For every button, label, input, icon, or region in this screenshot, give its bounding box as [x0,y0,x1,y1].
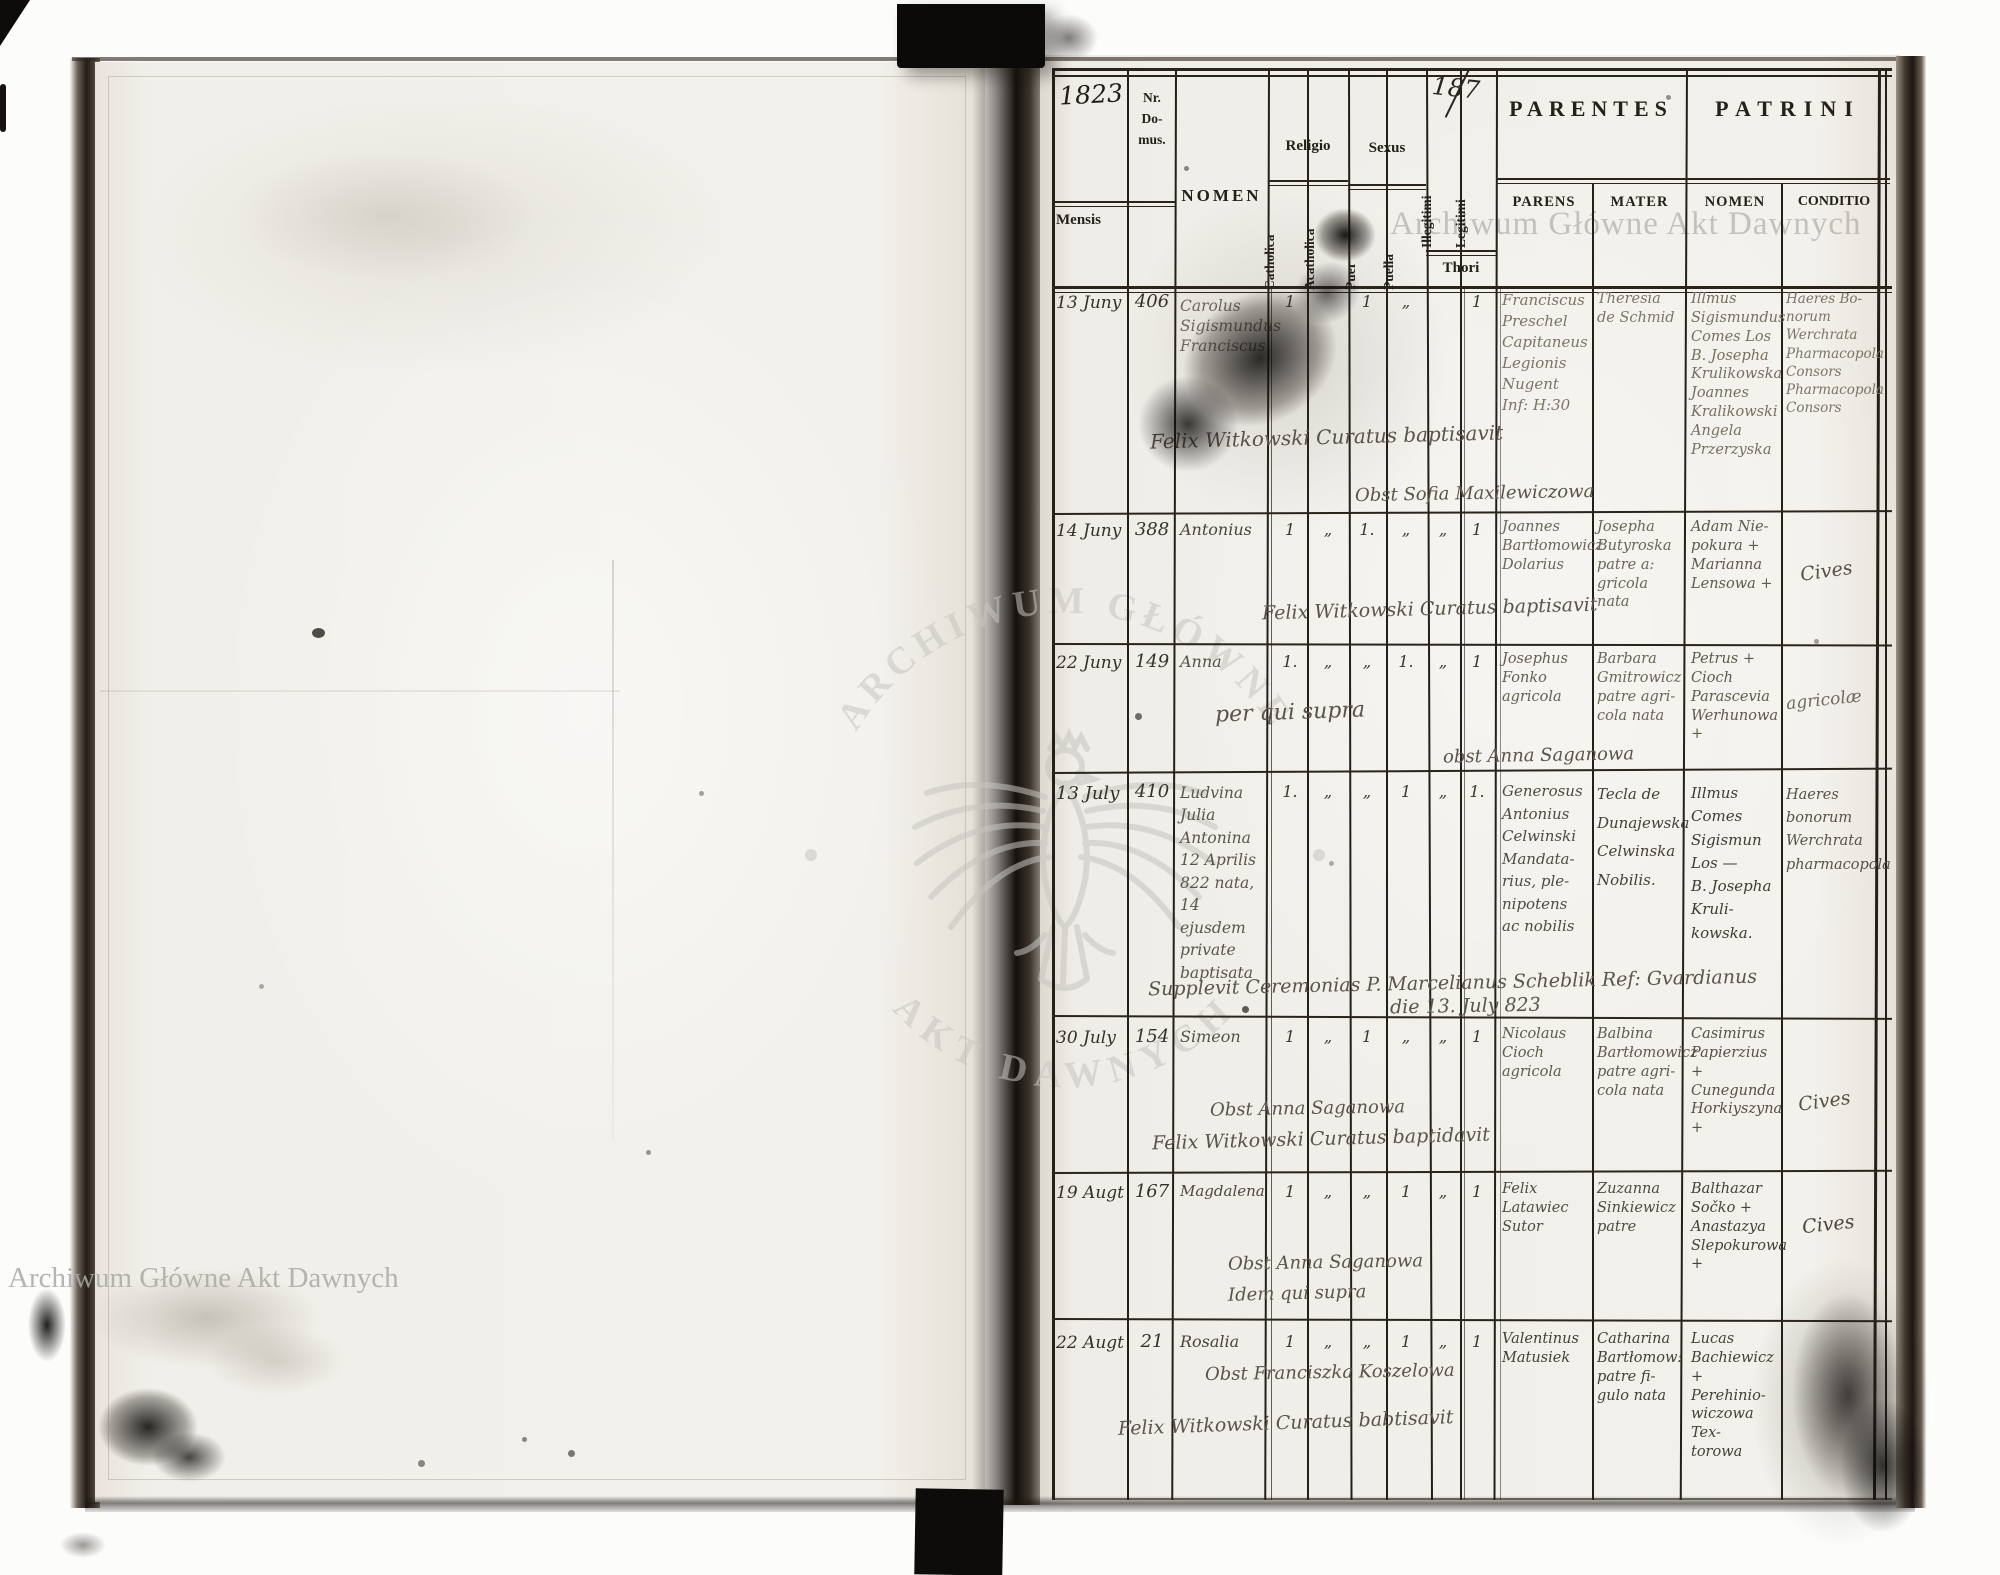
tally-puella: 1 [1388,1182,1424,1201]
tally-acatholica: „ [1310,1332,1346,1351]
cell-nomen: Anna [1180,652,1266,673]
rule-line [1496,178,1686,180]
column-header-patrini: PATRINI [1686,96,1890,122]
column-header-illegitimi: Illegitimi [1419,196,1435,249]
column-header-catholica: Catholica [1262,235,1278,291]
cell-nr-domus: 167 [1130,1180,1174,1203]
tally-puella: 1 [1388,782,1424,801]
cell-patrini-nomen: Illmus Sigismundus Comes Los B. Josepha … [1691,290,1779,460]
rule-line [1127,68,1129,1500]
cell-nr-domus: 149 [1130,650,1174,673]
cell-mater: Josepha Butyroska patre a: gricola nata [1597,518,1684,612]
marginal-note-midwife: Obst Franciszka Koszelowa [1205,1360,1455,1385]
cell-conditio: Cives [1797,1079,1899,1117]
tally-acatholica: „ [1310,652,1346,671]
cell-mensis: 13 Juny [1056,292,1126,314]
year-annotation: 1823 [1057,78,1124,110]
cell-nomen: Antonius [1180,520,1266,541]
book-spine-bottom [914,1488,1003,1575]
register-table: 1823 Nr. Do- mus. Mensis NOMEN Religio S… [1052,68,1892,1505]
cell-conditio: Haeres bonorum Werchrata pharmacopola [1786,784,1886,877]
rule-line [1686,178,1890,180]
tally-legitimi: 1 [1460,1332,1494,1351]
rule-line [1052,206,1175,207]
tally-illegitimi: „ [1428,1182,1458,1201]
tally-legitimi: 1 [1460,520,1494,539]
stain [60,1532,106,1558]
cell-nomen: Carolus Sigismundus Franciscus [1180,296,1266,356]
rule-line [1268,180,1348,182]
tally-illegitimi: „ [1428,652,1458,671]
cell-mensis: 13 July [1056,782,1126,805]
page-frame-line [108,76,966,1480]
column-header-parentes: PARENTES [1496,96,1686,122]
tally-puella: „ [1388,292,1424,311]
cell-mater: Barbara Gmitrowicz patre agri- cola nata [1597,650,1684,725]
cell-nomen: Rosalia [1180,1332,1266,1353]
cell-mensis: 14 Juny [1056,520,1126,542]
ink-blot [1138,376,1238,472]
rule-line [1052,201,1175,203]
tally-catholica: 1. [1274,782,1306,801]
marginal-note: Idem qui supra [1228,1281,1367,1306]
cell-mater: Zuzanna Sinkiewicz patre [1597,1180,1684,1237]
tally-catholica: 1 [1274,1027,1306,1046]
rule-line [1494,68,1498,1500]
cell-mensis: 19 Augt [1056,1182,1126,1204]
cell-patrini-nomen: Balthazar Sočko + Anastazya Slepokurowa … [1691,1180,1779,1274]
page-number-annotation: 187 [1431,71,1494,106]
cell-mensis: 22 Juny [1056,652,1126,674]
cell-conditio: Cives [1801,1205,1903,1240]
tally-catholica: 1 [1274,292,1306,311]
cell-mensis: 30 July [1056,1027,1126,1049]
column-header-puella: Puella [1381,254,1397,290]
rule-line [1592,183,1594,1500]
cell-nr-domus: 21 [1130,1330,1174,1353]
cell-patrini-nomen: Petrus + Cioch Parascevia Werhunowa + [1691,650,1779,744]
cell-mensis: 22 Augt [1056,1332,1126,1354]
scan-corner-artifact [0,0,30,46]
tally-illegitimi: „ [1428,520,1458,539]
tally-acatholica: „ [1310,520,1346,539]
tally-catholica: 1. [1274,652,1306,671]
tally-acatholica: „ [1310,782,1346,801]
cell-mater: Tecla de Dunajewska Celwinska Nobilis. [1597,780,1684,894]
rule-line [1348,184,1426,186]
tally-catholica: 1 [1274,1332,1306,1351]
rule-line [1052,643,1892,646]
column-header-patrini-nomen: NOMEN [1689,194,1781,211]
cell-patrini-nomen: Adam Nie- pokura + Marianna Lensowa + [1691,518,1779,593]
tally-puer: „ [1350,782,1384,801]
marginal-note-date: die 13. July 823 [1390,994,1541,1019]
book-right-cover-edge [1896,56,1926,1508]
cell-patrini-nomen: Illmus Comes Sigismun Los — B. Josepha K… [1691,782,1779,945]
column-header-nomen: NOMEN [1175,186,1268,206]
column-header-nr-domus: Nr. Do- mus. [1129,88,1175,151]
marginal-note-midwife: Obst Sofia Maxilewiczowa [1355,481,1595,506]
cell-nr-domus: 406 [1130,290,1174,313]
tally-illegitimi: „ [1428,1027,1458,1046]
tally-legitimi: 1 [1460,652,1494,671]
cell-nr-domus: 154 [1130,1025,1174,1048]
ink-blot [1314,208,1376,262]
rule-line [1052,510,1892,515]
marginal-note-baptizer: Felix Witkowski Curatus babtisavit [1118,1406,1454,1440]
rule-line [1052,768,1892,774]
marginal-note-baptizer: Felix Witkowski Curatus baptisavit [1262,594,1598,625]
tally-puella: „ [1388,1027,1424,1046]
cell-mater: Theresia de Schmid [1597,290,1684,328]
column-header-legitimi: Legitimi [1453,199,1469,248]
rule-line [1052,68,1892,71]
ink-blot [28,1288,66,1362]
marginal-note-midwife: obst Anna Saganowa [1443,743,1634,767]
tally-puer: „ [1350,1182,1384,1201]
rule-line [1496,183,1686,184]
column-header-sexus: Sexus [1348,140,1426,157]
tally-illegitimi: „ [1428,1332,1458,1351]
tally-puella: 1. [1388,652,1424,671]
cell-conditio: Haeres Bo- norum Werchrata Pharmacopola … [1786,290,1886,418]
rule-line [1426,255,1496,256]
cell-nomen: Simeon [1180,1027,1266,1048]
cell-mater: Balbina Bartłomowicz patre agri- cola na… [1597,1025,1684,1100]
marginal-note-baptizer: Felix Witkowski Curatus baptidavit [1152,1124,1490,1155]
page-crease [100,690,620,692]
scan-edge-artifact [0,84,6,132]
tally-acatholica: „ [1310,1027,1346,1046]
tally-legitimi: 1 [1460,1027,1494,1046]
page-crease [612,560,614,1140]
cell-parens: Josephus Fonko agricola [1502,650,1590,707]
cell-parens: Joannes Bartłomowicz Dolarius [1502,518,1590,575]
tally-puella: 1 [1388,1332,1424,1351]
cell-nomen: Ludvina Julia Antonina 12 Aprilis 822 na… [1180,782,1266,984]
marginal-note-midwife: Obst Anna Saganowa [1210,1096,1405,1120]
rule-line [1268,185,1348,186]
ink-smudge-halo [1122,188,1452,528]
tally-puer: 1. [1350,520,1384,539]
column-header-parens: PARENS [1498,194,1590,211]
marginal-note: per qui supra [1215,697,1366,727]
marginal-note-baptizer: Felix Witkowski Curatus baptisavit [1150,420,1504,453]
cell-nr-domus: 388 [1130,518,1174,541]
column-header-religio: Religio [1268,138,1348,155]
marginal-note-midwife: Obst Anna Saganowa [1228,1250,1423,1274]
tally-catholica: 1 [1274,1182,1306,1201]
cell-parens: Felix Latawiec Sutor [1502,1180,1590,1237]
tally-puella: „ [1388,520,1424,539]
cell-nr-domus: 410 [1130,780,1174,803]
rule-line [1426,250,1496,252]
scanned-register-spread: ARCHIWUM GŁÓWNE AKT DAWNYCH Archiwum Głó… [0,0,2000,1575]
book-spine-top [897,4,1045,68]
tally-illegitimi: „ [1428,782,1458,801]
cell-parens: Generosus Antonius Celwinski Mandata- ri… [1502,780,1590,938]
tally-legitimi: 1 [1460,292,1494,311]
cell-nomen: Magdalena [1180,1182,1266,1202]
tally-puer: 1 [1350,292,1384,311]
cell-patrini-nomen: Casimirus Papierzius + Cunegunda Horkiys… [1691,1025,1779,1138]
tally-legitimi: 1 [1460,1182,1494,1201]
column-header-acatholica: Acatholica [1302,229,1318,291]
column-header-conditio: CONDITIO [1781,194,1887,210]
tally-puer: „ [1350,652,1384,671]
cell-mater: Catharina Bartłomow: patre fi- gulo nata [1597,1330,1684,1405]
spine-shadow [1040,14,1098,62]
column-header-puer: Puer [1343,262,1359,290]
cell-patrini-nomen: Lucas Bachiewicz + Perehinio- wiczowa Te… [1691,1330,1779,1462]
rule-line [1052,1170,1892,1174]
tally-puer: 1 [1350,1027,1384,1046]
tally-acatholica: „ [1310,1182,1346,1201]
rule-line [1052,286,1892,289]
cell-parens: Nicolaus Cioch agricola [1502,1025,1590,1082]
tally-catholica: 1 [1274,520,1306,539]
tally-legitimi: 1. [1460,782,1494,801]
cell-parens: Franciscus Preschel Capitaneus Legionis … [1502,290,1590,416]
rule-line [1686,183,1890,184]
column-header-thori: Thori [1426,260,1496,277]
column-header-mater: MATER [1595,194,1684,211]
rule-line [1348,189,1426,190]
rule-line [1052,68,1055,1500]
column-header-mensis: Mensis [1056,212,1126,229]
left-page-blank [95,62,985,1502]
tally-puer: „ [1350,1332,1384,1351]
rule-line [1052,1498,1892,1500]
ink-blot [1792,1292,1904,1497]
rule-line [1052,1318,1892,1322]
cell-conditio: agricolæ [1785,683,1887,715]
cell-parens: Valentinus Matusiek [1502,1330,1590,1368]
